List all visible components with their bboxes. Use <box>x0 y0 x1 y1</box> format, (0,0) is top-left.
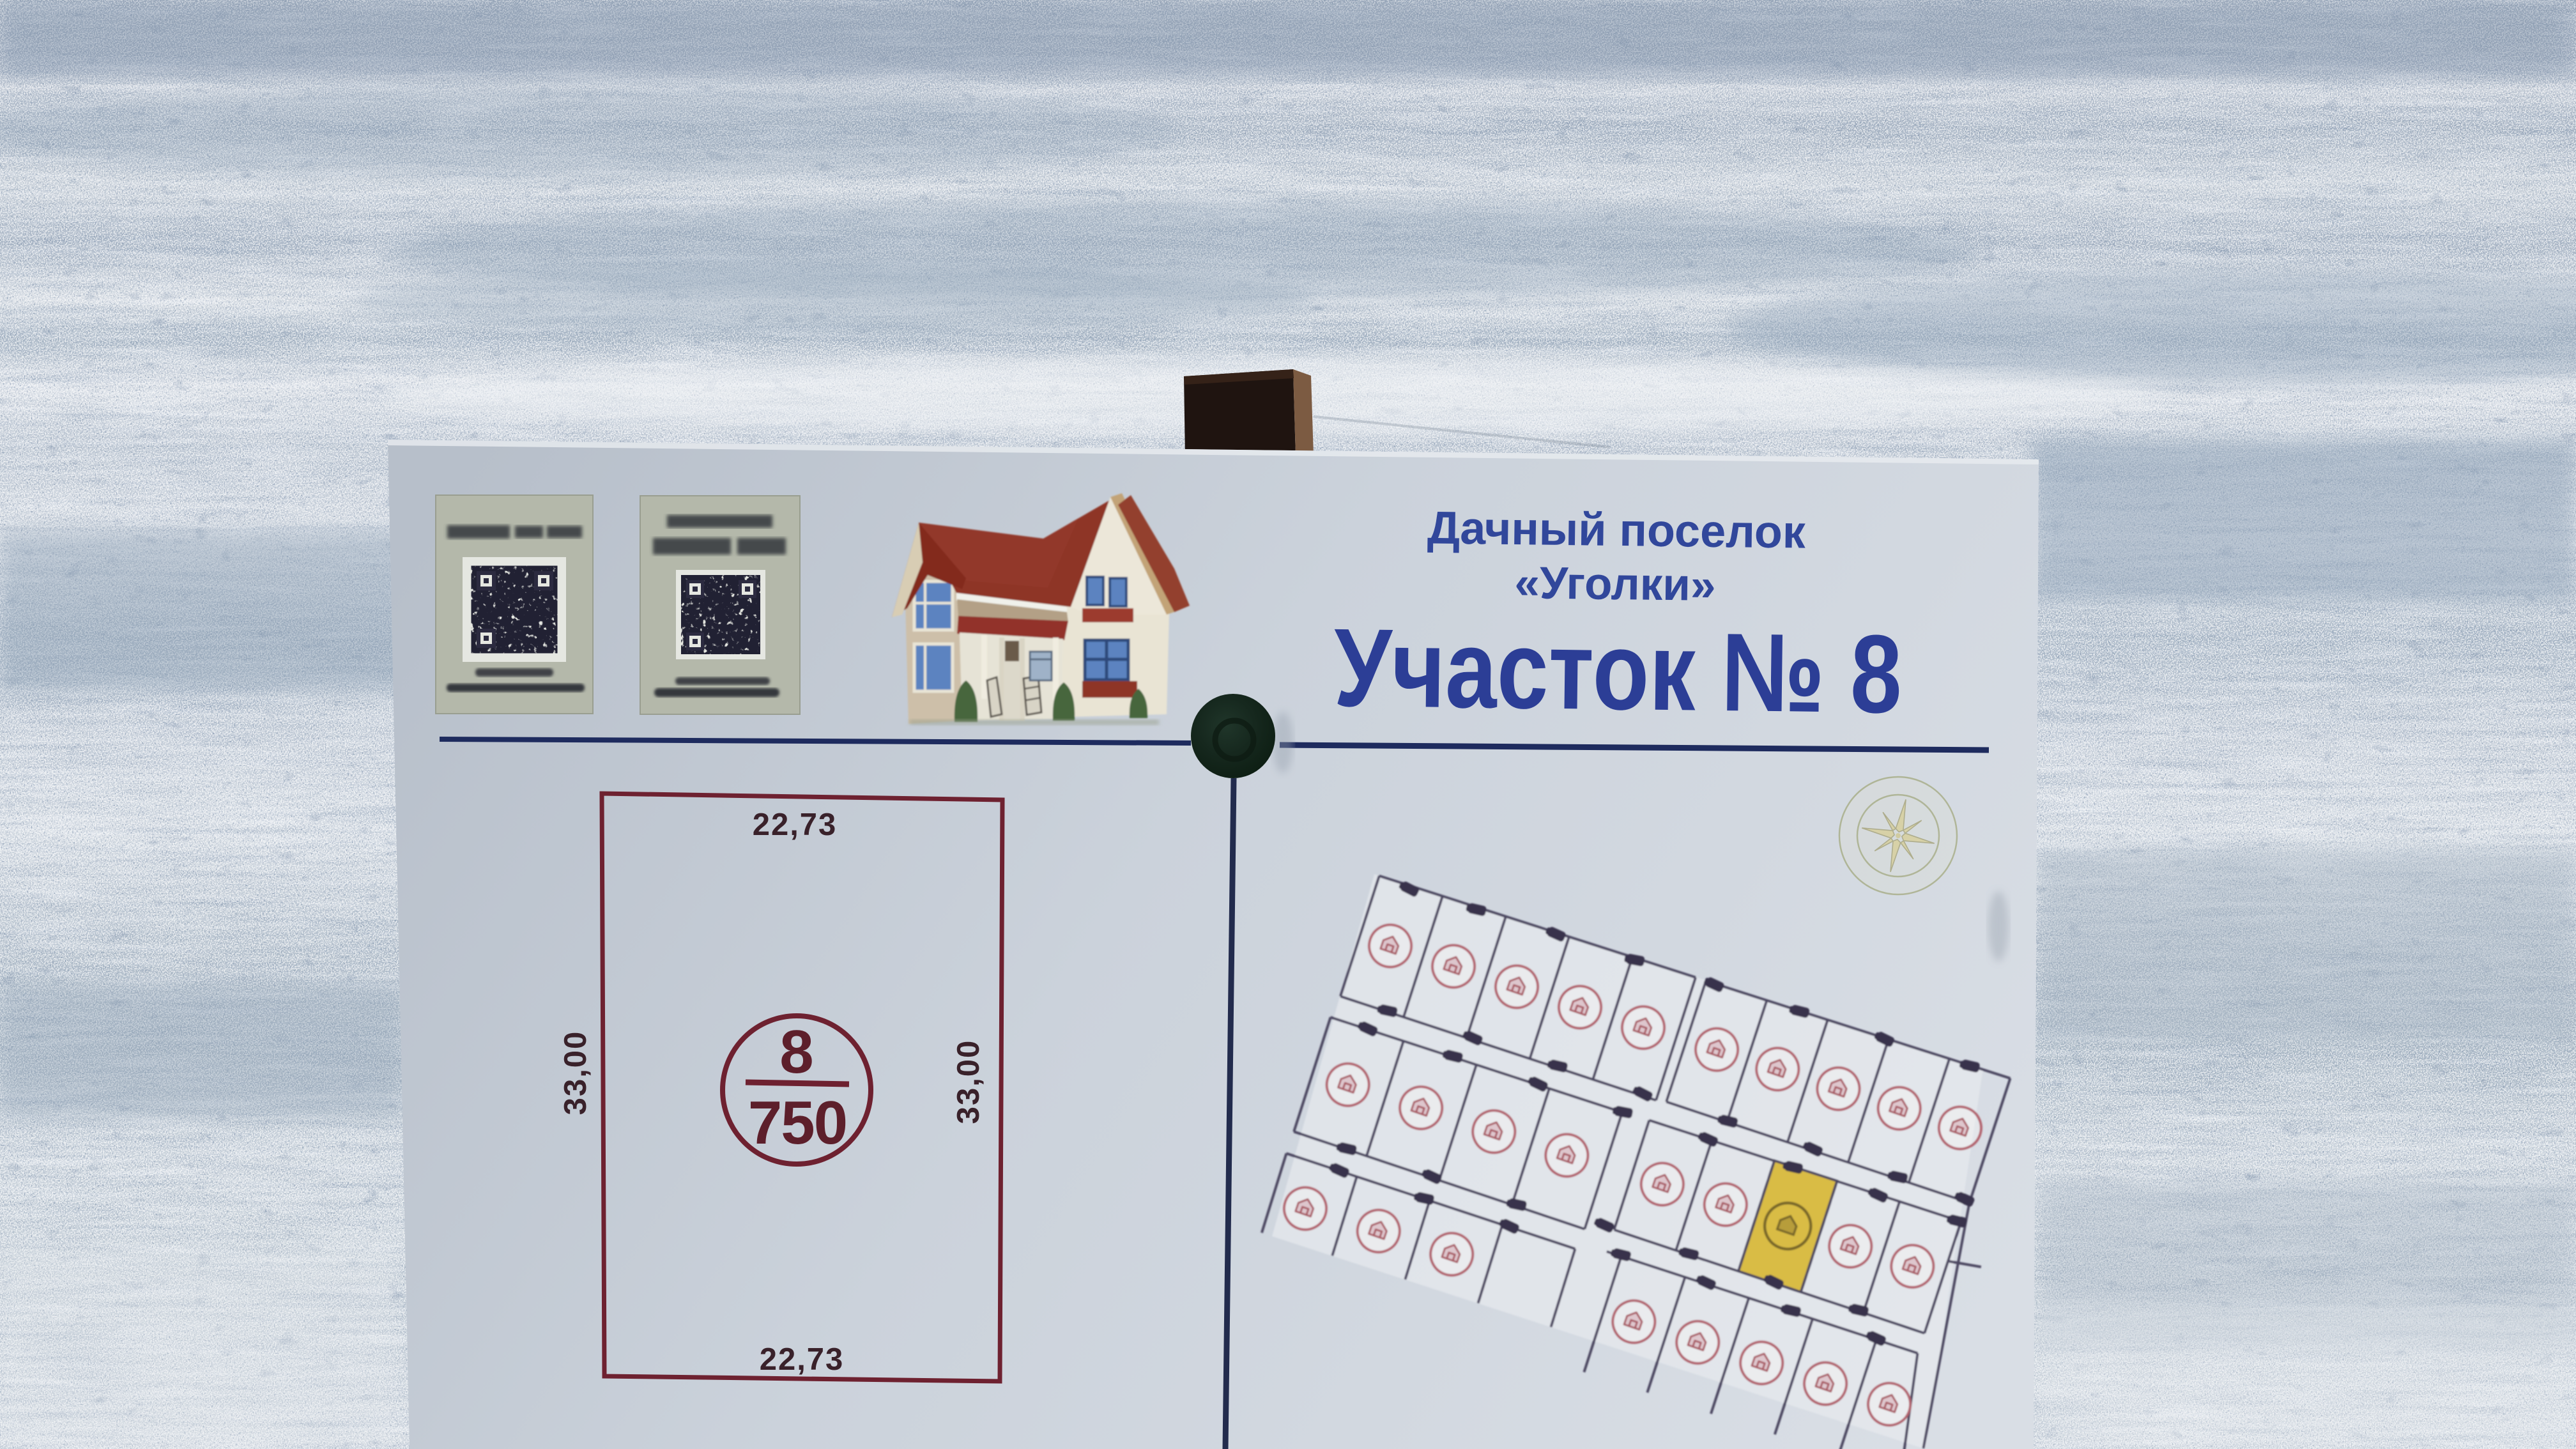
svg-text:Дачный поселок: Дачный поселок <box>1427 502 1807 558</box>
svg-text:«Уголки»: «Уголки» <box>1514 558 1716 611</box>
svg-text:750: 750 <box>748 1089 847 1157</box>
svg-text:22,73: 22,73 <box>753 808 838 842</box>
svg-text:33,00: 33,00 <box>558 1031 593 1115</box>
svg-text:33,00: 33,00 <box>951 1039 986 1124</box>
svg-text:8: 8 <box>779 1018 813 1086</box>
svg-text:Участок № 8: Участок № 8 <box>1333 605 1903 737</box>
svg-text:22,73: 22,73 <box>760 1342 845 1377</box>
